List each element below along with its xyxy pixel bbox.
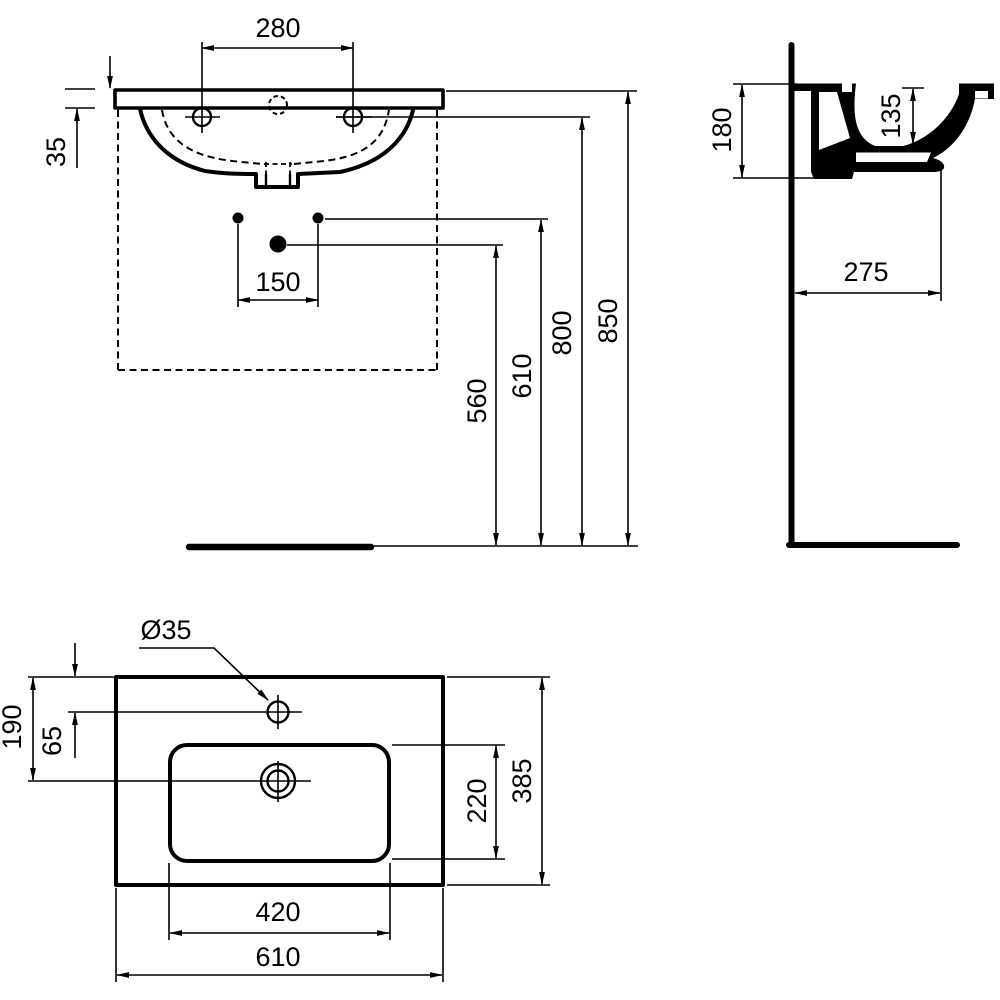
side-view: 180 135 275 [707, 45, 994, 545]
bowl-outline [140, 109, 413, 187]
dim-fixing-height: 610 [325, 219, 548, 545]
dim-label: 135 [876, 93, 906, 138]
dim-rim-thickness: 35 [41, 56, 110, 168]
dim-label: 800 [547, 310, 577, 355]
dim-label: 190 [0, 704, 27, 749]
technical-drawing-page: 280 35 150 560 610 [0, 0, 1000, 1000]
dim-tap-height: 800 [336, 117, 590, 545]
dim-label: Ø35 [140, 615, 191, 645]
top-view: Ø35 190 65 220 385 [0, 615, 550, 982]
dim-label: 150 [255, 267, 300, 297]
dim-label: 65 [37, 726, 67, 756]
dim-label: 385 [507, 758, 537, 803]
dim-bowl-plan-depth: 220 [392, 745, 505, 859]
dim-tap-offset: 65 [37, 643, 75, 758]
front-view: 280 35 150 560 610 [41, 13, 638, 547]
dim-bowl-width: 420 [169, 863, 390, 940]
dim-label: 275 [843, 257, 888, 287]
dim-outlet-height: 560 [287, 245, 503, 545]
dim-label: 220 [462, 778, 492, 823]
dim-wall-clearance: 275 [795, 164, 941, 301]
dim-label: 35 [41, 137, 71, 167]
fixing-hole-left-dot [233, 213, 244, 224]
bowl-plan-outline [170, 745, 389, 861]
overflow-hole-icon [269, 96, 287, 114]
dim-label: 420 [255, 897, 300, 927]
basin-rim [115, 90, 443, 108]
dim-tap-spacing: 280 [202, 13, 353, 133]
dim-label: 180 [707, 107, 737, 152]
dim-tap-hole-diameter: Ø35 [139, 615, 268, 700]
inner-bowl-dashed-right [294, 110, 389, 164]
dim-label: 610 [507, 353, 537, 398]
tap-hole-slot [842, 82, 852, 92]
dim-label: 610 [255, 942, 300, 972]
dim-overall-depth: 180 [707, 84, 815, 178]
tap-hole-plan-icon [68, 695, 302, 729]
fixing-hole-right-dot [313, 213, 324, 224]
washbasin-drawing-svg: 280 35 150 560 610 [0, 0, 1000, 1000]
dim-label: 850 [593, 298, 623, 343]
dim-label: 280 [255, 13, 300, 43]
drain-boss [264, 162, 292, 187]
dim-fixing-spacing: 150 [238, 267, 318, 300]
waste-outlet-dot [270, 236, 287, 253]
dim-bowl-depth: 135 [876, 88, 924, 144]
dim-label: 560 [462, 378, 492, 423]
